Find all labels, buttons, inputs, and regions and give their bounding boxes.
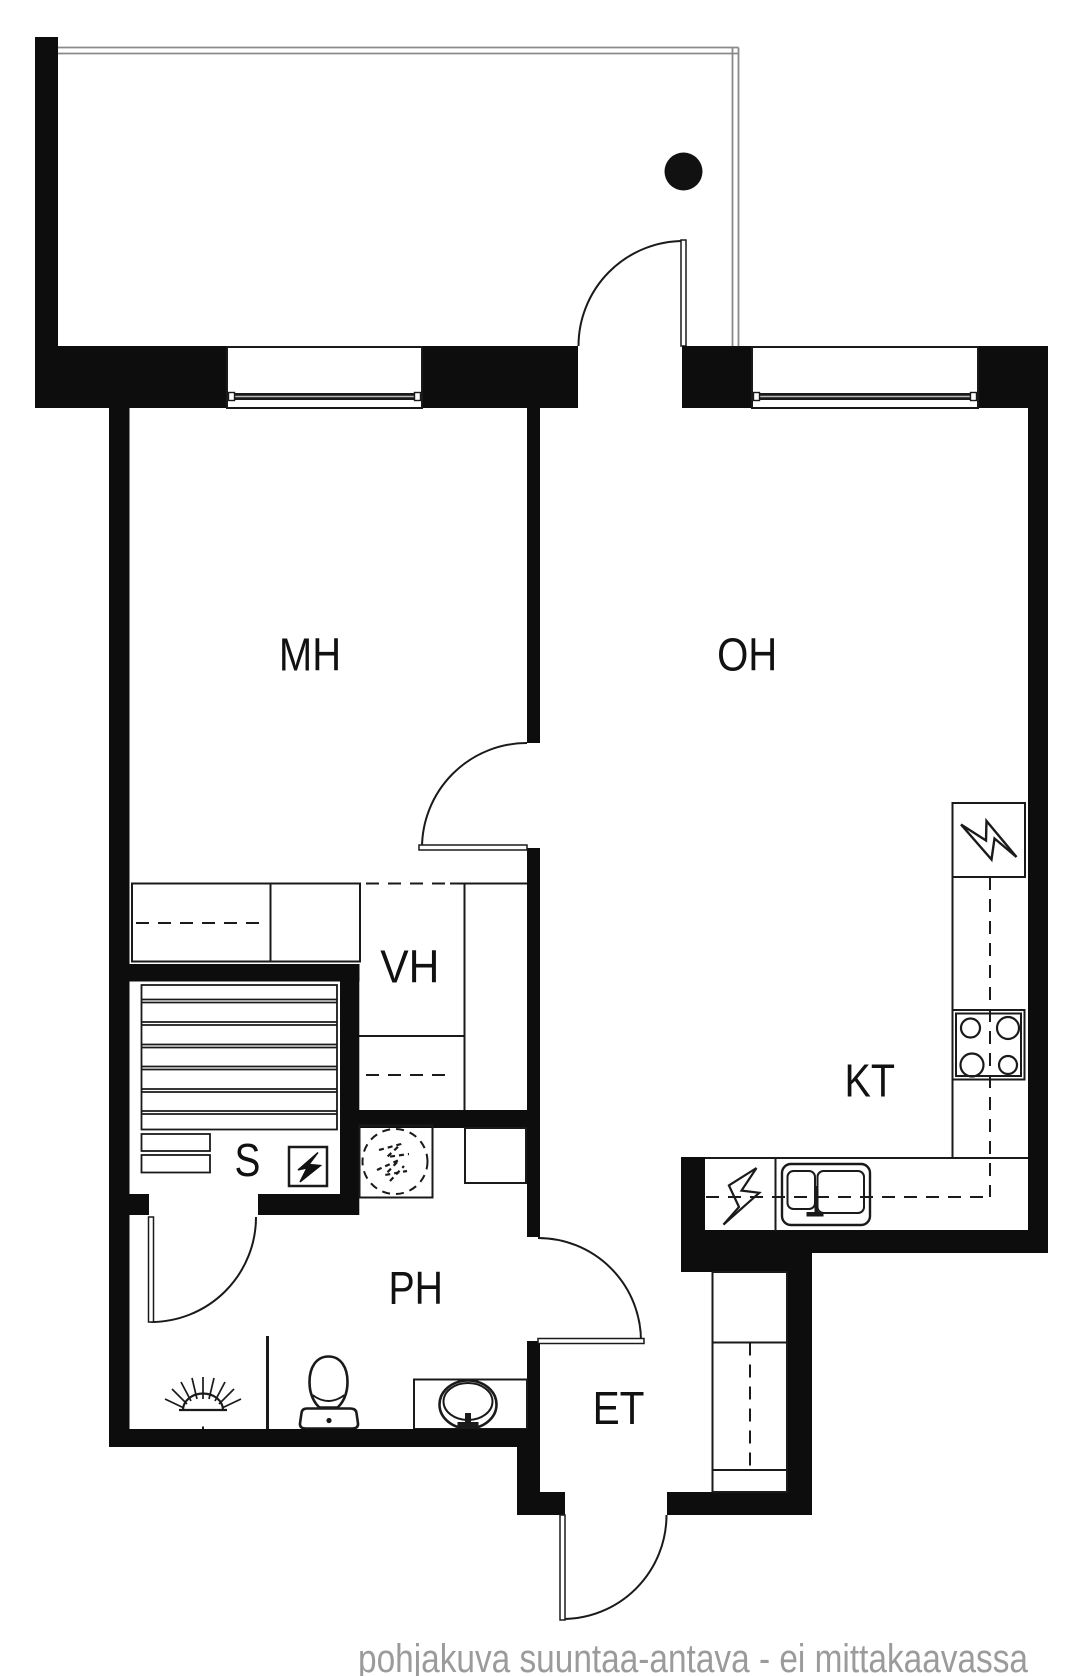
- svg-text:KT: KT: [845, 1055, 896, 1107]
- svg-text:pohjakuva suuntaa-antava - ei: pohjakuva suuntaa-antava - ei mittakaava…: [358, 1637, 1029, 1676]
- svg-text:PH: PH: [389, 1262, 444, 1314]
- svg-text:VH: VH: [380, 940, 439, 992]
- svg-text:MH: MH: [279, 629, 341, 681]
- svg-text:OH: OH: [717, 629, 777, 681]
- svg-text:S: S: [235, 1134, 261, 1186]
- svg-text:ET: ET: [593, 1382, 645, 1434]
